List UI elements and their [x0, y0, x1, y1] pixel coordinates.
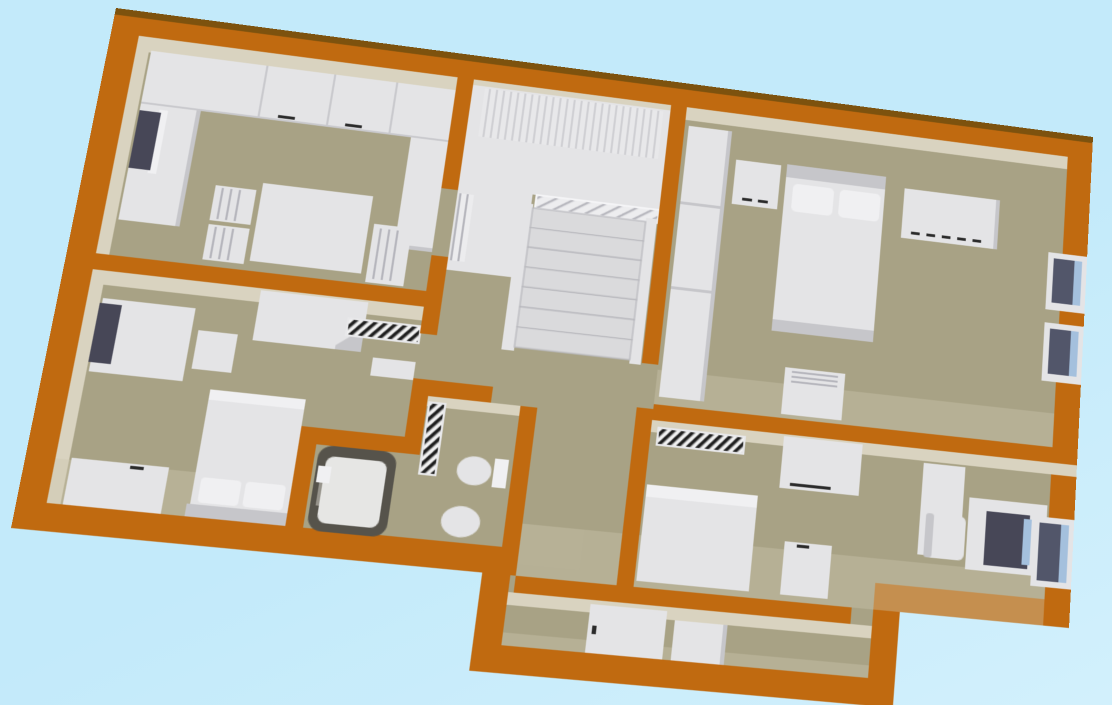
desk-chair: [923, 513, 966, 561]
staircase: [501, 203, 657, 365]
screenshot-root: [0, 0, 1112, 705]
chair: [209, 185, 256, 225]
nightstand: [732, 160, 782, 210]
small-shelf: [664, 366, 700, 401]
pillow: [791, 183, 835, 216]
nightstand: [780, 541, 832, 599]
wardrobe: [585, 604, 667, 660]
dining-table: [250, 183, 374, 274]
desk-with-slats: [781, 367, 845, 420]
pillow: [242, 482, 286, 511]
window: [1041, 322, 1083, 385]
bed: [636, 484, 758, 591]
double-bed: [771, 164, 886, 342]
pillow: [838, 189, 881, 222]
chair: [202, 224, 249, 264]
pillow: [197, 477, 242, 506]
wardrobe: [671, 620, 728, 665]
low-dresser: [63, 458, 169, 514]
stair-treads: [514, 208, 645, 360]
window: [1030, 516, 1074, 590]
desk-chair: [192, 330, 238, 373]
window: [1045, 252, 1087, 314]
tub-faucet: [316, 465, 332, 483]
